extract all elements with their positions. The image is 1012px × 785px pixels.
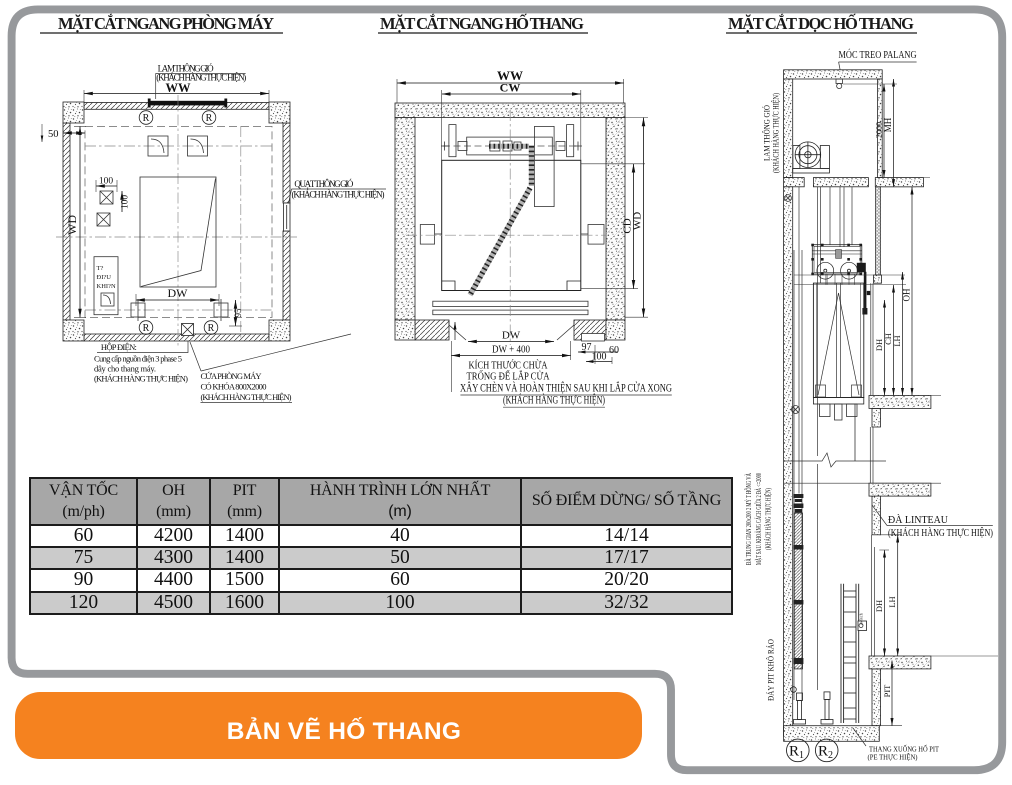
svg-text:R: R xyxy=(143,323,150,334)
svg-text:HỘP ĐIỆN:: HỘP ĐIỆN: xyxy=(101,342,137,352)
svg-text:TRỐNG ĐỂ LẮP CỬA: TRỐNG ĐỂ LẮP CỬA xyxy=(467,370,550,383)
svg-text:KHI?N: KHI?N xyxy=(97,283,116,290)
svg-text:60: 60 xyxy=(609,345,619,356)
svg-text:DW + 400: DW + 400 xyxy=(492,345,530,356)
svg-text:(KHÁCH HÀNG THỰC HIỆN): (KHÁCH HÀNG THỰC HIỆN) xyxy=(765,488,773,550)
svg-text:(KHÁCH HÀNG THỰC HIỆN): (KHÁCH HÀNG THỰC HIỆN) xyxy=(201,392,292,402)
svg-text:R: R xyxy=(143,113,150,124)
svg-text:XÂY CHÈN VÀ HOÀN THIỆN SAU KHI: XÂY CHÈN VÀ HOÀN THIỆN SAU KHI LẮP CỬA X… xyxy=(460,380,672,395)
svg-text:R: R xyxy=(206,113,213,124)
svg-text:100: 100 xyxy=(121,195,131,210)
svg-text:DW: DW xyxy=(168,286,189,300)
svg-text:WD: WD xyxy=(632,212,644,230)
svg-text:CÓ KHÓA 800X2000: CÓ KHÓA 800X2000 xyxy=(201,382,267,392)
svg-text:100: 100 xyxy=(99,177,114,187)
svg-text:WD: WD xyxy=(65,215,79,235)
svg-text:50: 50 xyxy=(48,129,59,140)
svg-text:R2: R2 xyxy=(818,744,833,762)
svg-text:ĐÀ LINTEAU: ĐÀ LINTEAU xyxy=(888,514,949,526)
svg-text:MẶT SAU. KHOẢNG CÁCH GIỮA 2 ĐÀ: MẶT SAU. KHOẢNG CÁCH GIỮA 2 ĐÀ <=2000 xyxy=(755,473,763,565)
svg-text:ĐÀ TRUNG GIAN 200x200 2 MỶ T H: ĐÀ TRUNG GIAN 200x200 2 MỶ T HỒNG VÀ xyxy=(745,473,753,565)
svg-text:(KHÁCH HÀNG THỰC HIỆN): (KHÁCH HÀNG THỰC HIỆN) xyxy=(503,393,605,407)
svg-text:dây cho thang máy.: dây cho thang máy. xyxy=(94,364,156,374)
svg-text:(KHÁCH HÀNG THỰC HIỆN): (KHÁCH HÀNG THỰC HIỆN) xyxy=(94,374,188,384)
svg-text:MẶT CẮT NGANG PHÒNG MÁY: MẶT CẮT NGANG PHÒNG MÁY xyxy=(58,14,274,33)
svg-text:T?: T? xyxy=(97,265,104,272)
svg-text:MẶT CẮT NGANG HỐ THANG: MẶT CẮT NGANG HỐ THANG xyxy=(380,13,584,33)
svg-text:switch: switch xyxy=(859,612,864,624)
svg-text:100: 100 xyxy=(592,352,607,363)
svg-text:QUẠT THÔNG GIÓ: QUẠT THÔNG GIÓ xyxy=(294,179,354,189)
svg-text:MÓC TREO PALANG: MÓC TREO PALANG xyxy=(839,49,917,61)
svg-text:LH: LH xyxy=(887,596,897,607)
svg-text:(KHÁCH HÀNG THỰC HIỆN): (KHÁCH HÀNG THỰC HIỆN) xyxy=(888,527,993,539)
svg-text:DH: DH xyxy=(874,600,884,612)
svg-text:Cung cấp nguồn điện 3 phase 5: Cung cấp nguồn điện 3 phase 5 xyxy=(94,354,182,364)
svg-text:(KHÁCH HÀNG THỰC HIỆN): (KHÁCH HÀNG THỰC HIỆN) xyxy=(292,190,385,200)
svg-text:WW: WW xyxy=(166,81,192,95)
svg-text:OH: OH xyxy=(902,288,912,301)
svg-text:R1: R1 xyxy=(789,744,804,762)
svg-text:95: 95 xyxy=(233,308,243,318)
svg-text:ĐI?U: ĐI?U xyxy=(97,274,112,281)
svg-text:CW: CW xyxy=(500,81,521,95)
svg-text:(KHÁCH HÀNG THỰC HIỆN): (KHÁCH HÀNG THỰC HIỆN) xyxy=(771,93,781,173)
svg-text:ĐÁY PIT KHÔ RÁO: ĐÁY PIT KHÔ RÁO xyxy=(766,639,776,701)
svg-text:97: 97 xyxy=(582,342,592,353)
svg-text:DW: DW xyxy=(502,330,521,342)
svg-text:MẶT CẮT DỌC HỐ THANG: MẶT CẮT DỌC HỐ THANG xyxy=(728,13,914,33)
svg-text:(PE THỰC HIỆN): (PE THỰC HIỆN) xyxy=(868,752,918,762)
svg-text:PIT: PIT xyxy=(882,684,892,698)
svg-text:LAM THÔNG GIÓ: LAM THÔNG GIÓ xyxy=(762,105,772,161)
svg-text:CỨA PHÒNG MÁY: CỨA PHÒNG MÁY xyxy=(201,371,262,381)
svg-text:R: R xyxy=(208,323,215,334)
svg-text:LH: LH xyxy=(892,335,902,346)
svg-text:MH: MH xyxy=(883,117,893,132)
